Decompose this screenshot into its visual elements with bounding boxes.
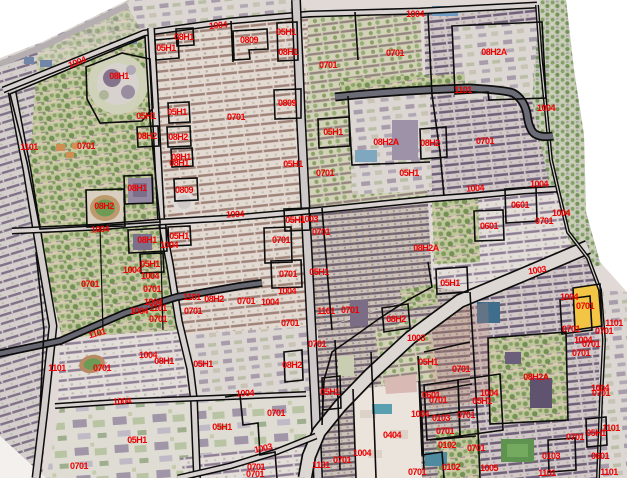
svg-text:1101: 1101 [20, 142, 38, 152]
svg-text:0701: 0701 [237, 296, 256, 306]
svg-text:08H2: 08H2 [94, 201, 114, 211]
svg-text:1101: 1101 [317, 306, 335, 316]
svg-text:08H1: 08H1 [109, 71, 129, 81]
svg-text:08H2A: 08H2A [413, 243, 440, 253]
svg-text:1004: 1004 [466, 183, 485, 194]
svg-text:08H2A: 08H2A [523, 372, 550, 382]
svg-text:0701: 0701 [149, 314, 168, 324]
svg-text:1004: 1004 [406, 9, 425, 19]
svg-text:08H2: 08H2 [386, 314, 406, 324]
svg-text:08H1: 08H1 [137, 235, 157, 245]
svg-text:05H1: 05H1 [140, 259, 160, 269]
svg-text:05H1: 05H1 [136, 111, 156, 121]
svg-text:0701: 0701 [341, 305, 360, 315]
svg-text:0701: 0701 [246, 469, 265, 478]
svg-text:0809: 0809 [240, 35, 259, 45]
svg-text:05H1: 05H1 [193, 359, 213, 369]
svg-text:1004: 1004 [411, 409, 430, 419]
svg-text:0601: 0601 [511, 200, 530, 210]
svg-text:0701: 0701 [143, 284, 162, 294]
svg-text:1003: 1003 [407, 333, 426, 343]
svg-text:0701: 0701 [535, 216, 554, 226]
svg-text:0701: 0701 [319, 60, 338, 70]
svg-text:05H1: 05H1 [167, 107, 187, 117]
svg-text:05H1: 05H1 [127, 435, 147, 445]
svg-text:1101: 1101 [600, 467, 618, 477]
svg-text:0601: 0601 [591, 451, 610, 461]
svg-text:0701: 0701 [476, 136, 495, 146]
svg-text:0701: 0701 [316, 168, 335, 178]
svg-text:1004: 1004 [261, 297, 280, 307]
svg-text:0701: 0701 [595, 326, 614, 336]
svg-text:1101: 1101 [183, 292, 201, 302]
svg-text:1101: 1101 [454, 85, 472, 95]
svg-text:0701: 0701 [408, 467, 427, 477]
svg-text:1004: 1004 [353, 448, 372, 458]
svg-text:1004: 1004 [160, 240, 179, 250]
svg-text:1004: 1004 [530, 179, 549, 189]
svg-text:08H2: 08H2 [168, 132, 188, 142]
svg-text:0103: 0103 [432, 413, 451, 423]
svg-text:08H2: 08H2 [282, 360, 302, 370]
svg-text:1004: 1004 [91, 224, 110, 235]
svg-text:0102: 0102 [438, 440, 457, 450]
svg-text:0701: 0701 [93, 363, 112, 373]
svg-text:0701: 0701 [308, 339, 327, 349]
svg-text:1101: 1101 [602, 423, 620, 433]
svg-text:0701: 0701 [576, 301, 595, 311]
svg-text:0701: 0701 [70, 461, 89, 471]
svg-text:1004: 1004 [552, 208, 571, 218]
svg-text:0103: 0103 [542, 451, 561, 461]
svg-text:0701: 0701 [592, 388, 611, 398]
svg-text:1101: 1101 [48, 363, 66, 373]
svg-text:0701: 0701 [267, 408, 286, 418]
svg-text:1004: 1004 [537, 103, 556, 113]
svg-text:1004: 1004 [130, 306, 149, 316]
svg-text:05H1: 05H1 [276, 27, 296, 37]
svg-text:0701: 0701 [562, 324, 581, 334]
svg-text:0701: 0701 [467, 443, 486, 453]
svg-text:0601: 0601 [480, 221, 499, 231]
svg-text:0102: 0102 [442, 462, 461, 472]
svg-text:05H1: 05H1 [156, 43, 176, 53]
svg-text:1004: 1004 [141, 271, 160, 281]
svg-text:05H1: 05H1 [323, 127, 343, 137]
svg-text:0701: 0701 [312, 227, 331, 237]
svg-text:0701: 0701 [436, 426, 455, 436]
svg-text:0701: 0701 [572, 348, 591, 358]
svg-text:1004: 1004 [226, 209, 245, 220]
svg-text:08H2A: 08H2A [481, 47, 508, 57]
svg-text:0701: 0701 [566, 432, 585, 442]
svg-text:1004: 1004 [278, 286, 297, 296]
svg-text:05H1: 05H1 [399, 168, 419, 178]
svg-text:0701: 0701 [184, 306, 203, 316]
svg-text:08H2A: 08H2A [373, 137, 400, 147]
svg-text:08H2: 08H2 [137, 131, 157, 141]
svg-text:1003: 1003 [300, 214, 319, 224]
svg-text:05H1: 05H1 [440, 278, 460, 288]
svg-text:05H1: 05H1 [283, 159, 303, 169]
svg-text:05H1: 05H1 [472, 396, 492, 406]
svg-text:0404: 0404 [383, 430, 402, 440]
svg-text:0701: 0701 [77, 141, 96, 151]
svg-text:1004: 1004 [209, 19, 228, 31]
svg-text:0701: 0701 [272, 235, 291, 245]
svg-text:1004: 1004 [236, 388, 255, 399]
svg-text:0701: 0701 [452, 364, 471, 374]
svg-text:0701: 0701 [281, 318, 300, 328]
svg-text:1005: 1005 [480, 463, 499, 473]
svg-text:0809: 0809 [278, 98, 297, 108]
svg-text:1101: 1101 [312, 460, 330, 470]
svg-text:0701: 0701 [81, 279, 100, 289]
svg-text:0701: 0701 [227, 112, 246, 122]
svg-text:05H1: 05H1 [212, 422, 232, 432]
svg-text:1101: 1101 [538, 468, 556, 478]
svg-text:1004: 1004 [123, 265, 142, 275]
svg-text:0809: 0809 [175, 185, 194, 195]
svg-text:08H1: 08H1 [278, 47, 298, 57]
svg-text:0701: 0701 [429, 395, 448, 405]
svg-text:08H2: 08H2 [204, 294, 224, 304]
svg-text:0701: 0701 [386, 48, 405, 58]
svg-text:08H2: 08H2 [420, 138, 440, 148]
svg-text:05H1: 05H1 [418, 357, 438, 367]
svg-text:08H1: 08H1 [127, 183, 147, 193]
svg-text:08H1: 08H1 [174, 32, 194, 42]
svg-text:0701: 0701 [333, 455, 352, 465]
svg-text:1101: 1101 [149, 303, 167, 313]
svg-text:05H1: 05H1 [320, 387, 340, 397]
svg-text:0701: 0701 [457, 410, 476, 420]
svg-text:08H1: 08H1 [154, 356, 174, 366]
svg-text:0701: 0701 [279, 269, 298, 279]
svg-text:05H1: 05H1 [309, 267, 329, 277]
svg-text:1004: 1004 [113, 396, 132, 407]
svg-text:08H1: 08H1 [169, 158, 189, 168]
